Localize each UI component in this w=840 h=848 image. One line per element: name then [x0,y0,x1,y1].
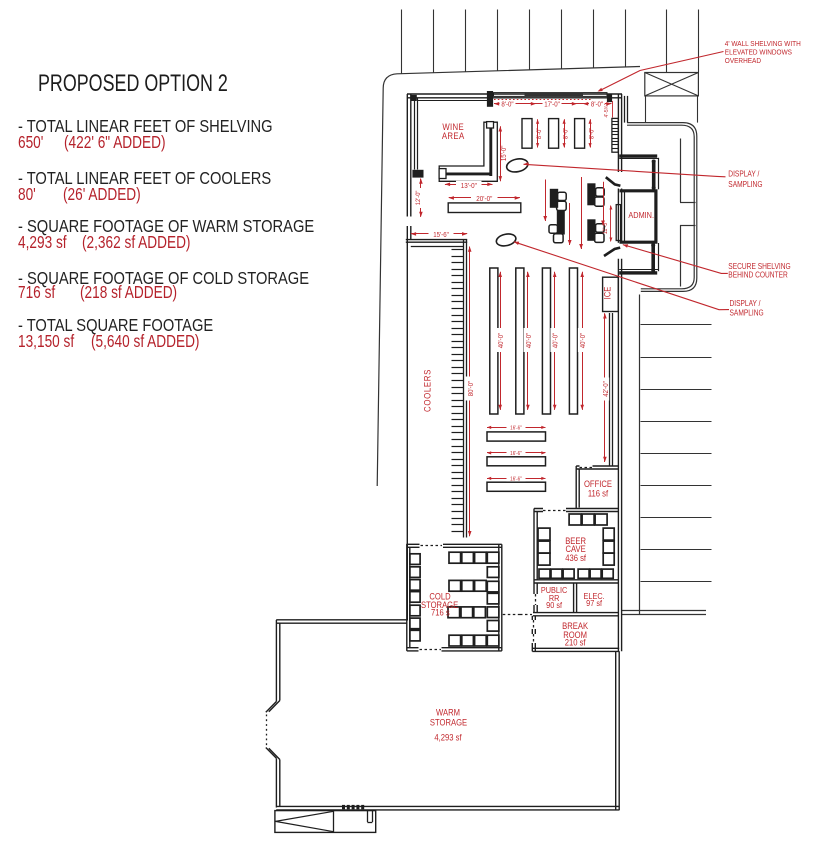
svg-text:4,293 sf: 4,293 sf [434,732,462,743]
svg-text:17'-0": 17'-0" [544,101,560,109]
svg-text:210 sf: 210 sf [565,637,586,648]
svg-text:DISPLAY /: DISPLAY / [728,169,759,179]
svg-text:SAMPLING: SAMPLING [730,308,765,318]
svg-text:BEHIND COUNTER: BEHIND COUNTER [728,270,788,280]
svg-text:12'-0": 12'-0" [415,191,423,206]
svg-text:COOLERS: COOLERS [422,369,433,412]
svg-text:8'-0": 8'-0" [562,128,570,139]
svg-text:40'-0": 40'-0" [580,332,588,348]
svg-text:ELEVATED WINDOWS: ELEVATED WINDOWS [725,49,792,57]
svg-text:ICE: ICE [602,286,613,299]
svg-text:8'-0": 8'-0" [591,101,604,109]
svg-text:15'-6": 15'-6" [433,232,449,240]
svg-text:16'-6": 16'-6" [510,425,522,431]
svg-text:4'-5¾": 4'-5¾" [604,103,610,117]
svg-text:42'-0": 42'-0" [603,381,611,397]
svg-text:OVERHEAD: OVERHEAD [725,58,761,66]
svg-text:13'-0": 13'-0" [461,183,478,191]
svg-text:116 sf: 116 sf [588,488,609,499]
svg-text:40'-0": 40'-0" [526,332,534,348]
svg-text:SAMPLING: SAMPLING [728,179,763,189]
svg-text:15'-0": 15'-0" [500,145,508,161]
svg-text:90 sf: 90 sf [546,601,563,611]
svg-text:DISPLAY /: DISPLAY / [730,298,761,308]
svg-text:40'-0": 40'-0" [498,332,506,348]
svg-text:8'-0": 8'-0" [536,128,544,139]
svg-text:716 s: 716 s [431,607,450,618]
svg-text:80'-0": 80'-0" [468,380,476,396]
svg-text:STORAGE: STORAGE [430,717,468,728]
svg-text:4' WALL SHELVING WITH: 4' WALL SHELVING WITH [725,40,801,48]
svg-text:40'-0": 40'-0" [552,332,560,348]
svg-text:97 sf: 97 sf [586,599,603,609]
svg-text:16'-6": 16'-6" [510,451,522,457]
svg-text:16'-6": 16'-6" [510,476,522,482]
svg-text:8'-0": 8'-0" [501,101,514,109]
svg-text:20'-0": 20'-0" [476,196,493,204]
svg-text:ADMIN.: ADMIN. [628,211,654,221]
svg-text:AREA: AREA [442,130,465,141]
svg-text:436 sf: 436 sf [565,552,586,563]
svg-text:8'-0": 8'-0" [588,128,596,139]
